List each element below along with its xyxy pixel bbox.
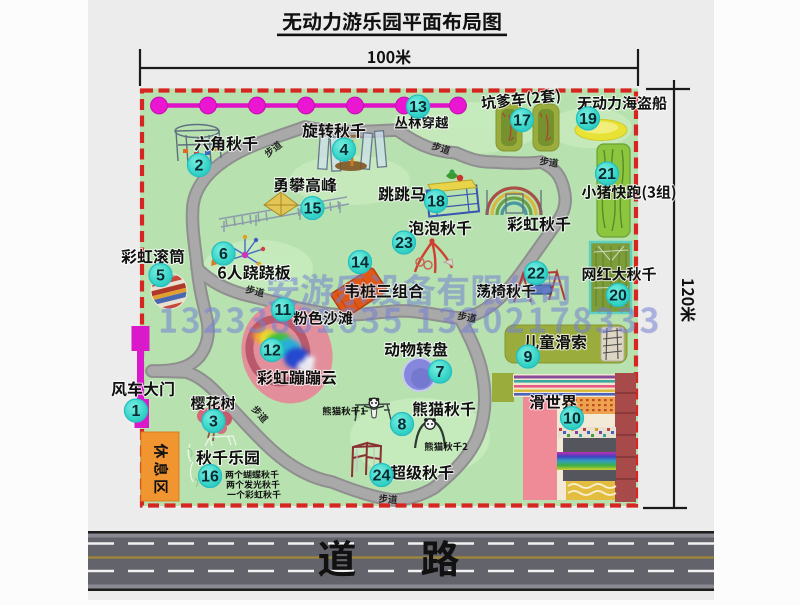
svg-text:14: 14 — [351, 255, 369, 272]
svg-text:12: 12 — [263, 343, 281, 360]
svg-text:19: 19 — [579, 111, 597, 128]
svg-text:7: 7 — [436, 364, 445, 381]
svg-text:2: 2 — [195, 158, 204, 175]
svg-text:15: 15 — [304, 201, 322, 218]
svg-text:23: 23 — [395, 235, 413, 252]
svg-text:18: 18 — [427, 194, 445, 211]
svg-text:8: 8 — [398, 417, 407, 434]
svg-text:4: 4 — [340, 142, 349, 159]
svg-text:13: 13 — [409, 99, 427, 116]
svg-text:3: 3 — [209, 414, 218, 431]
svg-text:6: 6 — [219, 246, 228, 263]
svg-text:1: 1 — [132, 403, 141, 420]
svg-text:21: 21 — [598, 166, 616, 183]
svg-text:16: 16 — [201, 469, 219, 486]
svg-text:9: 9 — [524, 349, 533, 366]
svg-text:10: 10 — [563, 411, 581, 428]
svg-text:20: 20 — [609, 288, 627, 305]
svg-text:24: 24 — [373, 468, 391, 485]
svg-text:22: 22 — [527, 266, 545, 283]
svg-text:11: 11 — [275, 302, 292, 319]
svg-text:17: 17 — [513, 113, 531, 130]
svg-text:5: 5 — [156, 268, 165, 285]
